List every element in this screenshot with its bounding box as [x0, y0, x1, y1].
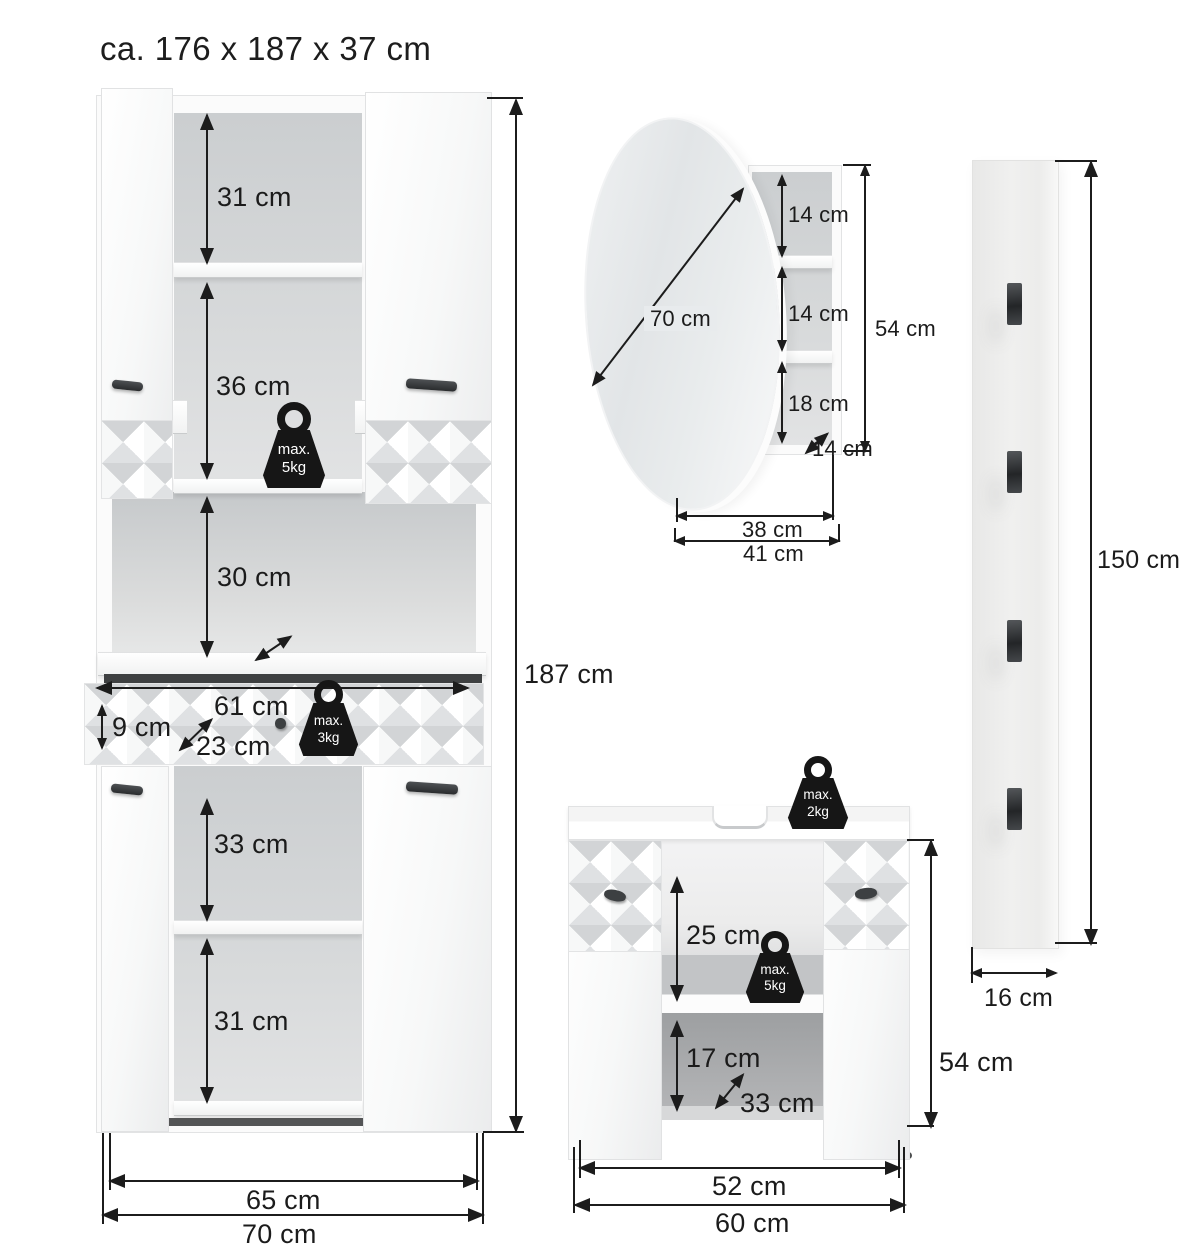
upper-right-door-pattern — [365, 420, 492, 504]
dim-line-54cm-mirror — [864, 166, 866, 451]
drawer-gap-shadow — [104, 674, 482, 683]
dim-label-60cm: 60 cm — [715, 1208, 790, 1239]
dim-line-17cm — [676, 1022, 678, 1110]
dim-line-61cm — [97, 687, 468, 689]
weight-body: max. 2kg — [786, 778, 850, 829]
dim-line-187cm — [515, 100, 517, 1131]
weight-kg-label: 3kg — [318, 730, 340, 746]
wall-hook-1 — [1007, 283, 1022, 325]
wall-panel-body — [972, 160, 1059, 949]
dim-line-31cm-top — [206, 115, 208, 263]
weight-3kg-icon: max. 3kg — [297, 680, 360, 756]
tall-cabinet-lower-right-door — [363, 766, 492, 1132]
dim-line-9cm — [101, 706, 103, 748]
dim-line-16cm — [972, 972, 1056, 974]
dimension-diagram: ca. 176 x 187 x 37 cm 31 cm 36 cm — [0, 0, 1200, 1251]
weight-kg-label: 5kg — [282, 459, 306, 477]
weight-max-label: max. — [803, 787, 832, 803]
tall-cabinet-lower-left-door — [101, 766, 169, 1132]
upper-left-door-pattern — [101, 420, 173, 499]
dim-line-60cm — [575, 1204, 905, 1206]
weight-kg-label: 2kg — [807, 804, 829, 820]
tall-cabinet-niche — [112, 492, 476, 654]
dim-line-150cm — [1090, 162, 1092, 944]
vanity-pipe-notch — [712, 806, 768, 829]
dim-label-70cm-mirror: 70 cm — [644, 306, 717, 331]
wall-hook-3 — [1007, 620, 1022, 662]
weight-5kg-icon: max. 5kg — [261, 402, 327, 488]
dim-label-14cm-depth: 14 cm — [812, 436, 873, 461]
tall-cabinet-shelf-3 — [174, 920, 362, 935]
dim-label-31cm-bottom: 31 cm — [214, 1006, 289, 1037]
dim-label-65cm: 65 cm — [246, 1185, 321, 1216]
dim-line-36cm — [206, 284, 208, 478]
dim-label-70cm: 70 cm — [242, 1219, 317, 1250]
dim-label-33cm: 33 cm — [214, 829, 289, 860]
dim-label-31cm-top: 31 cm — [217, 182, 292, 213]
page-title: ca. 176 x 187 x 37 cm — [100, 30, 431, 68]
dim-line-18cm — [781, 363, 783, 442]
dim-label-38cm: 38 cm — [742, 517, 803, 542]
dim-label-41cm: 41 cm — [743, 541, 804, 566]
dim-line-52cm — [580, 1167, 900, 1169]
dim-label-36cm: 36 cm — [216, 371, 291, 402]
dim-line-30cm — [206, 498, 208, 656]
dim-label-187cm: 187 cm — [524, 659, 614, 690]
dim-label-14cm-2: 14 cm — [788, 301, 849, 326]
weight-body: max. 5kg — [744, 953, 806, 1003]
weight-max-label: max. — [760, 962, 789, 978]
dim-label-23cm: 23 cm — [196, 731, 271, 762]
dim-line-14cm-2 — [781, 268, 783, 350]
dim-label-14cm-1: 14 cm — [788, 202, 849, 227]
dim-label-16cm: 16 cm — [984, 984, 1053, 1013]
dim-label-150cm: 150 cm — [1097, 546, 1180, 575]
tall-cabinet-counter — [98, 652, 486, 676]
weight-max-label: max. — [314, 713, 343, 729]
dim-label-61cm: 61 cm — [214, 691, 289, 722]
dim-label-54cm-vanity: 54 cm — [939, 1047, 1014, 1078]
weight-body: max. 3kg — [297, 703, 360, 756]
weight-max-label: max. — [278, 441, 311, 459]
wall-hook-2 — [1007, 451, 1022, 493]
dim-line-25cm — [676, 878, 678, 1000]
dim-label-52cm: 52 cm — [712, 1171, 787, 1202]
weight-body: max. 5kg — [261, 430, 327, 488]
wall-hook-4 — [1007, 788, 1022, 830]
weight-2kg-icon: max. 2kg — [786, 756, 850, 829]
dim-line-31cm-bottom — [206, 940, 208, 1102]
dim-line-14cm-1 — [781, 176, 783, 256]
dim-line-54cm-vanity — [930, 841, 932, 1127]
dim-label-54cm-mirror: 54 cm — [875, 316, 936, 341]
dim-label-18cm: 18 cm — [788, 391, 849, 416]
dim-label-33cm-vanity: 33 cm — [740, 1088, 815, 1119]
weight-5kg-vanity-icon: max. 5kg — [744, 931, 806, 1003]
dim-label-30cm: 30 cm — [217, 562, 292, 593]
dim-label-9cm: 9 cm — [112, 712, 171, 743]
dim-label-17cm: 17 cm — [686, 1043, 761, 1074]
dim-line-65cm — [110, 1180, 478, 1182]
dim-line-33cm — [206, 800, 208, 920]
weight-kg-label: 5kg — [764, 978, 786, 994]
